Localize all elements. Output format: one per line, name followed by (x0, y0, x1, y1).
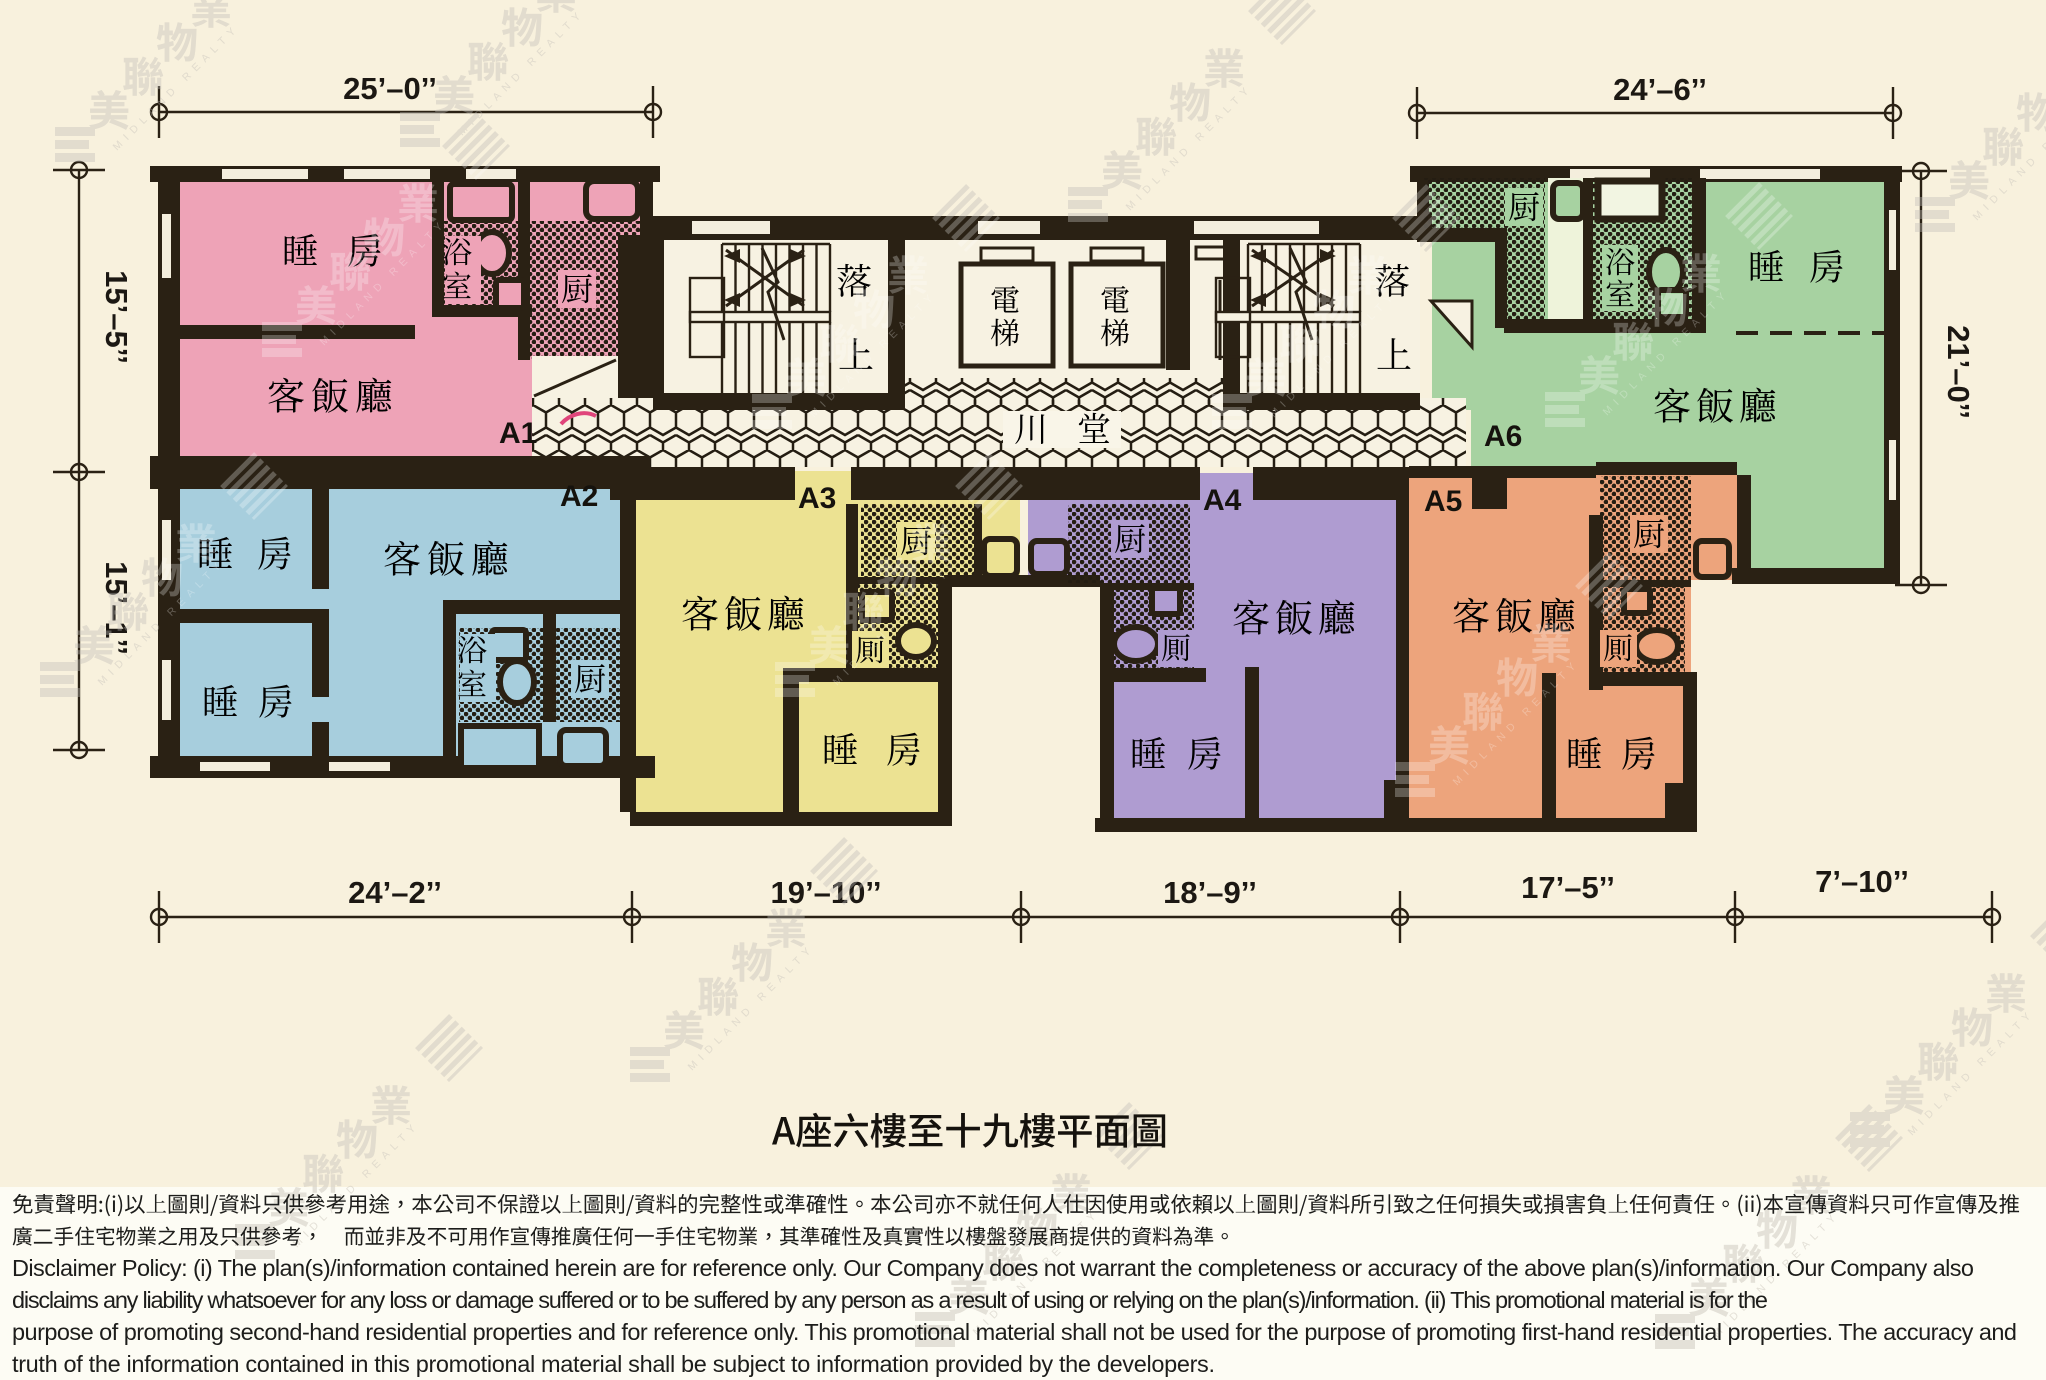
svg-text:A6: A6 (1484, 420, 1522, 453)
svg-text:7’–10’’: 7’–10’’ (1815, 864, 1909, 899)
svg-text:25’–0’’: 25’–0’’ (343, 71, 437, 106)
svg-text:21’–0’’: 21’–0’’ (1941, 325, 1976, 419)
svg-text:A5: A5 (1424, 485, 1462, 518)
svg-text:A2: A2 (560, 480, 598, 513)
svg-text:15’–5’’: 15’–5’’ (99, 270, 134, 364)
svg-text:Disclaimer Policy: (i) The pla: Disclaimer Policy: (i) The plan(s)/infor… (12, 1255, 1974, 1281)
svg-text:18’–9’’: 18’–9’’ (1163, 875, 1257, 910)
svg-text:A1: A1 (499, 417, 537, 450)
svg-text:17’–5’’: 17’–5’’ (1521, 870, 1615, 905)
svg-text:A3: A3 (798, 482, 836, 515)
svg-text:disclaims any liability whatso: disclaims any liability whatsoever for a… (12, 1287, 1768, 1313)
svg-text:24’–6’’: 24’–6’’ (1613, 72, 1707, 107)
svg-text:A4: A4 (1203, 484, 1242, 517)
svg-text:24’–2’’: 24’–2’’ (348, 875, 442, 910)
svg-text:purpose of promoting second-ha: purpose of promoting second-hand residen… (12, 1319, 2017, 1345)
svg-text:truth of the information conta: truth of the information contained in th… (12, 1351, 1215, 1377)
